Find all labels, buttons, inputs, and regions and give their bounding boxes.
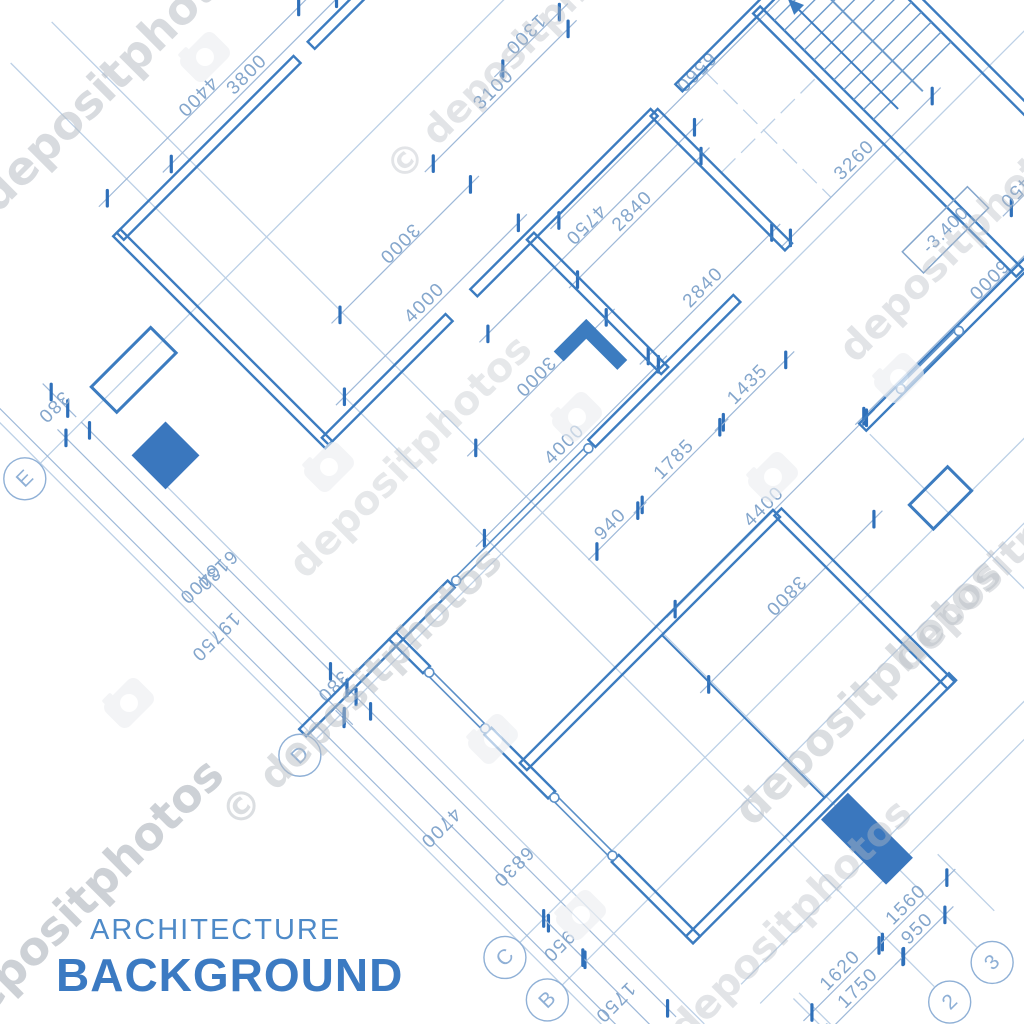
window	[450, 442, 595, 587]
dimension-label: 4000	[540, 420, 589, 469]
title-architecture: ARCHITECTURE	[90, 914, 403, 947]
dimension-label: 6830	[489, 842, 538, 891]
dimension-label: 3800	[223, 50, 272, 99]
window	[548, 791, 619, 862]
dimension-label: 3800	[761, 571, 810, 620]
title-block: ARCHITECTURE BACKGROUND	[56, 914, 403, 1002]
dimension-label: 3100	[469, 65, 518, 114]
dimension-line	[0, 192, 659, 1024]
blueprint-drawing: 4400380013003100656032604506000284047502…	[0, 0, 1024, 1024]
grid-bubble-label: 2	[937, 990, 962, 1015]
elevation-marker: -3.400	[902, 187, 988, 273]
grid-bubble: 2	[920, 972, 979, 1024]
dimension-label: 3000	[510, 352, 559, 401]
window	[423, 666, 492, 735]
dimension-label: 3000	[375, 219, 424, 268]
dimension-label: 3260	[830, 136, 879, 185]
grid-bubble-label: C	[491, 944, 518, 971]
dimensions-layer: 4400380013003100656032604506000284047502…	[0, 0, 1024, 1024]
dimension-label: 1435	[723, 360, 772, 409]
dimension-label: 450	[995, 172, 1024, 212]
dimension-tick	[329, 0, 345, 7]
dimension-label: 380	[313, 666, 353, 706]
dimension-label: 1750	[590, 978, 639, 1024]
dimension-label: 6560	[671, 47, 720, 96]
grid-bubble-label: 3	[980, 950, 1005, 975]
blueprint-stock-image: 4400380013003100656032604506000284047502…	[0, 0, 1024, 1024]
dimension-label: 4400	[172, 72, 221, 121]
dimension-label: 1300	[501, 10, 550, 59]
dimension-line	[163, 0, 345, 172]
dimension-line	[550, 0, 852, 229]
dimension-label: 2840	[608, 187, 657, 236]
grid-bubble-label: D	[286, 742, 313, 769]
grid-bubble-label: B	[534, 987, 560, 1013]
dimension-label: 950	[538, 926, 578, 966]
dimension-label: 1785	[650, 435, 699, 484]
dimension-label: 19750	[187, 608, 245, 666]
dimension-label: 2840	[679, 263, 728, 312]
title-background: BACKGROUND	[56, 948, 403, 1002]
dimension-label: 940	[590, 504, 630, 544]
window	[895, 325, 966, 396]
dimension-label: 4700	[416, 803, 465, 852]
dimension-label: 380	[33, 387, 73, 427]
dimension-label: 4750	[561, 200, 610, 249]
elevation-value: -3.400	[918, 202, 972, 256]
dimension-label: 4000	[400, 279, 449, 328]
dimension-label: 6000	[964, 255, 1013, 304]
grid-bubble-label: E	[12, 466, 38, 492]
